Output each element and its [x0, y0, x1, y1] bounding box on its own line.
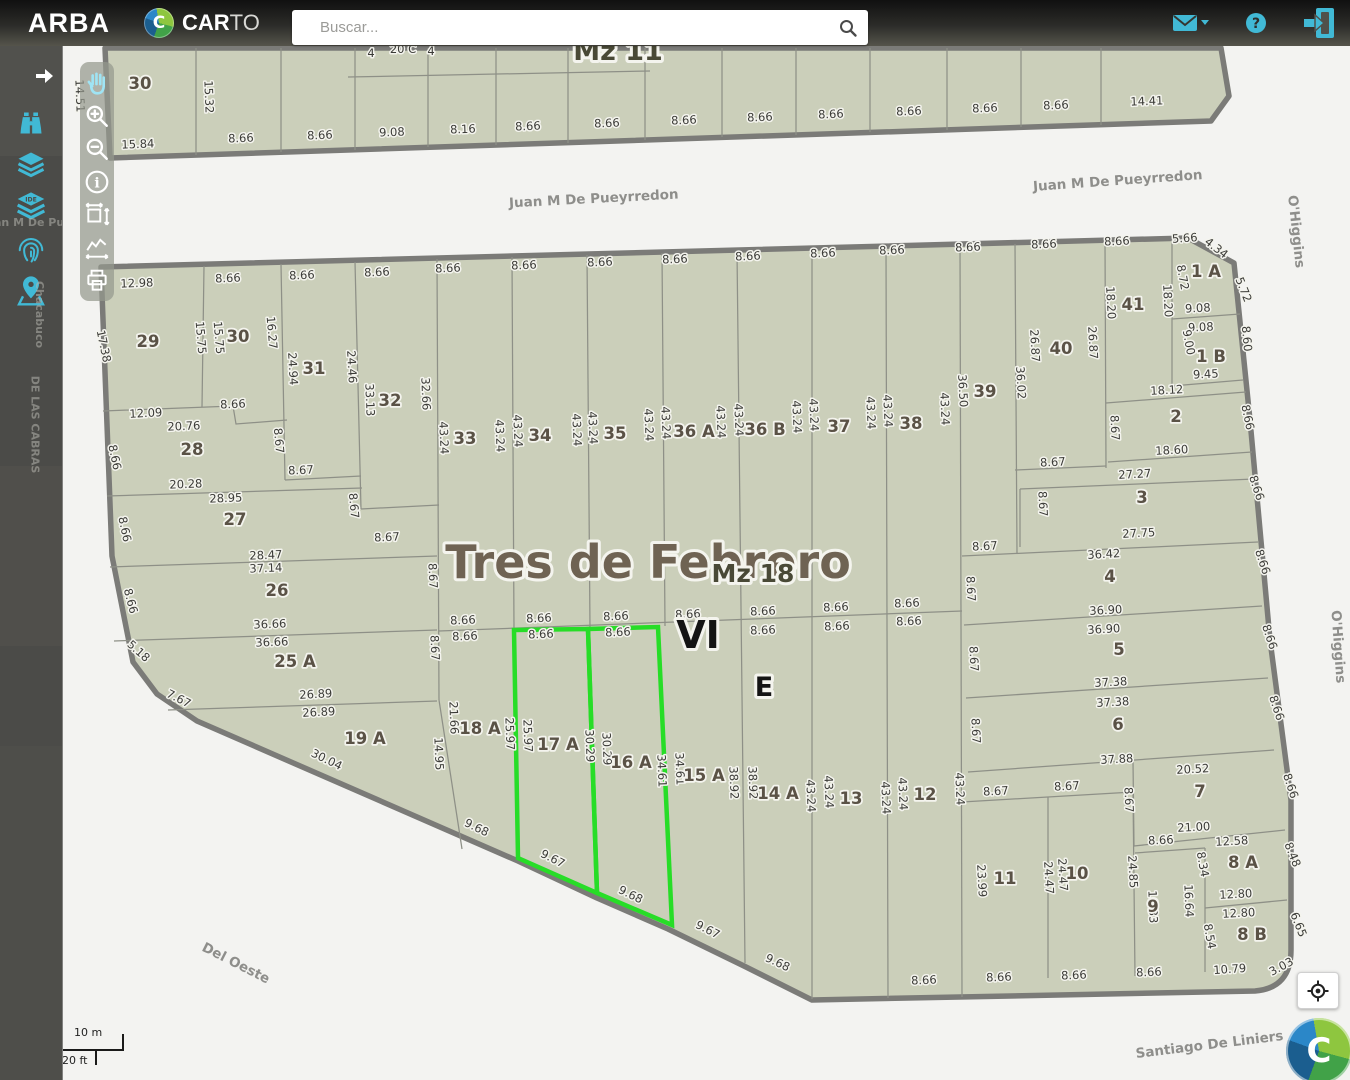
- dimension-label: 43.24: [789, 400, 804, 433]
- dimension-label: 8.66: [435, 261, 461, 276]
- parcel-number-label: 5: [1113, 640, 1124, 659]
- scale-metric-label: 10 m: [74, 1026, 102, 1039]
- dimension-label: 30.29: [582, 729, 597, 762]
- dimension-label: 37.14: [249, 560, 282, 575]
- dimension-label: 8.66: [215, 271, 241, 286]
- search-icon[interactable]: [828, 11, 868, 45]
- info-tool[interactable]: i: [82, 165, 112, 198]
- parcel-number-label: 8 B: [1237, 925, 1267, 944]
- dimension-label: 8.67: [288, 463, 314, 478]
- street-name-label: Santiago De Liniers: [1135, 1028, 1284, 1062]
- parcel-number-label: 35: [604, 424, 627, 443]
- dimension-label: 8.67: [983, 783, 1009, 798]
- parcel-number-label: 25 A: [274, 652, 316, 671]
- background-map-block: [0, 746, 62, 1080]
- dimension-label: 25.97: [502, 717, 517, 750]
- street-name-label: Juan M De Pueyrredon: [508, 187, 679, 212]
- dimension-label: 43.24: [878, 781, 893, 814]
- parcel-number-label: 12: [914, 785, 937, 804]
- dimension-label: 8.66: [896, 614, 922, 629]
- parcel-number-label: 30: [227, 327, 250, 346]
- print-tool[interactable]: [82, 264, 112, 297]
- dimension-label: 14.41: [1130, 93, 1163, 108]
- dimension-label: 8.66: [972, 101, 998, 116]
- dimension-label: 24.47: [1041, 861, 1057, 895]
- dimension-label: 8.66: [894, 596, 920, 611]
- dimension-label: 9.08: [1185, 300, 1211, 315]
- map-area: 15.848.668.669.088.168.668.668.668.668.6…: [0, 46, 1350, 1080]
- dimension-label: 25.97: [520, 719, 535, 752]
- arba-logo[interactable]: ARBA: [28, 8, 110, 39]
- svg-text:i: i: [94, 175, 99, 191]
- dimension-label: 8.16: [450, 122, 476, 137]
- dimension-label: 18.60: [1155, 442, 1189, 458]
- dimension-label: 8.67: [966, 646, 981, 672]
- dimension-label: 8.66: [896, 104, 922, 119]
- dimension-label: 43.24: [803, 779, 818, 812]
- expand-panel-arrow-icon[interactable]: [36, 68, 54, 89]
- dimension-label: 12.80: [1222, 905, 1256, 921]
- svg-text:IDE: IDE: [25, 197, 37, 204]
- parcel-number-label: 36 B: [744, 420, 785, 439]
- parcel-number-label: 39: [974, 382, 997, 401]
- dimension-label: 8.66: [1043, 98, 1069, 113]
- parcel-number-label: 1 B: [1196, 347, 1226, 366]
- dimension-label: 8.67: [1107, 415, 1122, 441]
- dimension-label: 8.67: [1054, 778, 1080, 793]
- dimension-label: 26.87: [1085, 326, 1101, 360]
- dimension-label: 4: [427, 46, 434, 58]
- dimension-label: 8.67: [972, 538, 998, 553]
- parcel-number-label: 7: [1194, 782, 1205, 801]
- dimension-label: 8.66: [452, 629, 478, 644]
- street-name-label: O'Higgins: [1327, 610, 1348, 684]
- dimension-label: 18.12: [1150, 382, 1184, 398]
- background-map-label: Chacabuco: [33, 281, 46, 348]
- dimension-label: 36.50: [955, 374, 971, 408]
- dimension-label: 8.60: [1239, 325, 1255, 352]
- dimension-label: 8.67: [374, 530, 400, 545]
- dimension-label: 8.66: [1104, 234, 1130, 249]
- parcel-number-label: 29: [137, 332, 160, 351]
- parcel-number-label: 17 A: [537, 735, 579, 754]
- dimension-label: 33.13: [362, 383, 377, 416]
- dimension-label: 8.67: [1121, 787, 1136, 813]
- dimension-label: 43.24: [952, 772, 967, 805]
- parcel-number-label: 6: [1112, 715, 1123, 734]
- dimension-label: 8.66: [528, 627, 554, 642]
- dimension-label: 8.66: [587, 255, 613, 270]
- logout-icon[interactable]: [1302, 7, 1338, 39]
- dimension-label: 43.24: [821, 775, 836, 808]
- dimension-label: 14.95: [431, 737, 446, 770]
- parcel-number-label: 19 A: [344, 729, 386, 748]
- dimension-label: 8.66: [735, 249, 761, 264]
- dimension-label: 32.66: [418, 377, 433, 410]
- dimension-label: 8.66: [747, 110, 773, 125]
- dimension-label: 5.66: [1171, 230, 1198, 246]
- parcel-number-label: 32: [379, 391, 402, 410]
- street-name-label: Juan M De Pueyrredon: [1032, 167, 1203, 195]
- dimension-label: 8.66: [228, 131, 254, 146]
- background-map-label: an M De Pueyrredon: [0, 216, 63, 229]
- dimension-label: 43.24: [569, 413, 584, 446]
- dimension-label: 28.95: [209, 490, 242, 505]
- parcel-number-label: 26: [266, 581, 289, 600]
- dimension-label: 24.85: [1125, 855, 1141, 889]
- parcel-number-label: 27: [224, 510, 247, 529]
- dimension-label: 8.66: [603, 609, 629, 624]
- parcel-number-label: 16 A: [610, 753, 652, 772]
- dimension-label: 37.88: [1100, 751, 1134, 767]
- dimension-label: 8.66: [818, 107, 844, 122]
- map-canvas[interactable]: 15.848.668.669.088.168.668.668.668.668.6…: [0, 46, 1350, 1080]
- dimension-label: 15.84: [121, 136, 154, 151]
- dimension-label: 16.64: [1181, 884, 1196, 917]
- dimension-label: 43.24: [585, 411, 600, 444]
- dimension-label: 8.66: [823, 600, 849, 615]
- measure-area-tool[interactable]: [82, 198, 112, 231]
- dimension-label: 8.66: [879, 243, 905, 258]
- geolocate-button[interactable]: [1297, 972, 1339, 1009]
- dimension-label: 8.67: [963, 576, 978, 602]
- zone-label: E: [755, 672, 773, 703]
- dimension-label: 36.02: [1013, 366, 1029, 400]
- search-box: [292, 10, 868, 45]
- street-name-label: Del Oeste: [199, 940, 272, 988]
- dimension-label: 10.79: [1213, 961, 1247, 977]
- dimension-label: 8.66: [750, 623, 776, 638]
- dimension-label: 8.66: [450, 613, 476, 628]
- zoom-in-tool[interactable]: [82, 99, 112, 132]
- dimension-label: 23.99: [974, 864, 990, 898]
- dimension-label: 36.66: [253, 616, 286, 631]
- dimension-label: 4: [367, 46, 374, 60]
- dimension-label: 8.67: [968, 718, 983, 744]
- dimension-label: 9.08: [379, 125, 405, 140]
- dimension-label: 8.66: [220, 397, 246, 412]
- dimension-label: 8.67: [271, 427, 287, 454]
- search-input[interactable]: [292, 19, 828, 36]
- dimension-label: 18.20: [1160, 284, 1176, 318]
- dimension-label: 8.66: [1136, 965, 1162, 980]
- dimension-label: 43.24: [492, 419, 507, 452]
- parcel-number-label: 4: [1104, 567, 1115, 586]
- dimension-label: 24.94: [285, 352, 301, 386]
- dimension-label: 43.24: [658, 406, 673, 439]
- layers-icon[interactable]: [12, 148, 50, 182]
- dimension-label: 43.24: [510, 414, 525, 447]
- dimension-label: 15.75: [193, 321, 210, 355]
- dimension-label: 43.24: [880, 394, 895, 427]
- dimension-label: 43.24: [937, 392, 952, 425]
- parcel-number-label: 2: [1170, 407, 1181, 426]
- dimension-label: 26.89: [299, 686, 333, 702]
- dimension-label: 18.20: [1103, 286, 1119, 320]
- carto-wordmark: CARTO: [182, 10, 260, 36]
- fingerprint-icon[interactable]: [12, 232, 50, 266]
- parcel-number-label: 36 A: [673, 422, 715, 441]
- dimension-label: 8.66: [605, 625, 631, 640]
- scale-imperial-label: 20 ft: [62, 1054, 88, 1067]
- parcel-number-label: 31: [303, 359, 326, 378]
- dimension-label: 8.66: [750, 604, 776, 619]
- dimension-label: 8.66: [1061, 968, 1087, 983]
- dimension-label: 8.66: [1148, 832, 1174, 847]
- help-icon[interactable]: ?: [1244, 11, 1268, 35]
- map-toolbar: i: [80, 62, 114, 301]
- left-panel-icons: IDE: [0, 106, 62, 308]
- dimension-label: 8.66: [662, 252, 688, 267]
- dimension-label: 8.66: [671, 113, 697, 128]
- svg-text:?: ?: [1252, 16, 1260, 32]
- dimension-label: 43.24: [806, 398, 821, 431]
- dimension-label: 12.09: [129, 405, 163, 421]
- zone-label: VI: [676, 613, 720, 657]
- dimension-label: 27.27: [1118, 466, 1152, 482]
- dimension-label: 8.66: [986, 970, 1012, 985]
- dimension-label: 36.42: [1087, 546, 1121, 562]
- dimension-label: 15.75: [211, 321, 228, 355]
- dimension-label: 12.58: [1215, 833, 1249, 849]
- dimension-label: 38.92: [726, 766, 741, 799]
- parcel-number-label: 34: [529, 426, 552, 445]
- dimension-label: 8.66: [810, 246, 836, 261]
- carto-globe-icon: C: [144, 8, 174, 38]
- parcel-number-label: 30: [129, 74, 152, 93]
- pan-hand-tool[interactable]: [82, 66, 112, 99]
- mail-icon[interactable]: [1172, 12, 1210, 34]
- app: ARBA C CARTO ? 15.848.668.669.088.168.66…: [0, 0, 1350, 1080]
- dimension-label: 24.46: [344, 350, 360, 384]
- street-name-label: O'Higgins: [1284, 194, 1308, 268]
- dimension-label: 8.66: [364, 265, 390, 280]
- parcel-number-label: 37: [828, 417, 851, 436]
- dimension-label: 12.80: [1219, 886, 1253, 902]
- dimension-label: 27.75: [1122, 525, 1156, 541]
- dimension-label: 8.66: [1031, 237, 1057, 252]
- parcel-number-label: 18 A: [459, 719, 501, 738]
- dimension-label: 8.67: [1040, 454, 1066, 469]
- parcel-number-label: 10: [1066, 864, 1089, 883]
- background-map-label: DE LAS CABRAS: [28, 376, 41, 474]
- parcel-number-label: 33: [454, 429, 477, 448]
- dimension-label: 8.67: [425, 563, 440, 589]
- dimension-label: 36.90: [1089, 602, 1123, 618]
- parcel-number-label: 15 A: [683, 766, 725, 785]
- dimension-label: 16.27: [264, 316, 281, 350]
- dimension-label: 43.24: [863, 396, 878, 429]
- dimension-label: 20.76: [167, 418, 200, 433]
- parcel-number-label: 11: [994, 869, 1017, 888]
- dimension-label: 8.66: [911, 973, 937, 988]
- dimension-label: 26.87: [1027, 329, 1043, 363]
- parcel-number-label: 1 A: [1191, 262, 1221, 281]
- parcel-number-label: 28: [181, 440, 204, 459]
- zoom-out-tool[interactable]: [82, 132, 112, 165]
- dimension-label: 21.00: [1177, 819, 1211, 835]
- parcel-number-label: 9: [1147, 897, 1158, 916]
- dimension-label: 8.66: [289, 268, 315, 283]
- topbar: ARBA C CARTO ?: [0, 0, 1350, 46]
- left-panel: IDE an M De PueyrredonChacabucoDE LAS CA…: [0, 46, 63, 1080]
- dimension-label: 26.89: [302, 704, 336, 720]
- parcel-number-label: 3: [1136, 488, 1147, 507]
- dimension-label: 37.38: [1094, 674, 1128, 690]
- background-map-block: [0, 466, 62, 646]
- carto-logo: C CARTO: [144, 8, 260, 38]
- dimension-label: 8.66: [515, 119, 541, 134]
- dimension-label: 34.61: [654, 754, 669, 787]
- dimension-label: 12.98: [120, 275, 153, 290]
- measure-path-tool[interactable]: [82, 231, 112, 264]
- dimension-label: 43.24: [641, 408, 656, 441]
- carto-logo-watermark: C: [1286, 1018, 1350, 1080]
- parcel-number-label: 41: [1122, 295, 1145, 314]
- parcel-number-label: 14 A: [757, 784, 799, 803]
- topbar-right-icons: ?: [1172, 0, 1338, 46]
- dimension-label: 37.38: [1096, 694, 1130, 710]
- dimension-label: 36.90: [1087, 621, 1121, 637]
- dimension-label: 43.24: [713, 405, 728, 438]
- zone-label: Mz 18: [712, 559, 795, 588]
- dimension-label: 20 C: [390, 46, 416, 56]
- dimension-label: 8.66: [307, 128, 333, 143]
- dimension-label: 36.66: [255, 634, 288, 649]
- dimension-label: 20.52: [1176, 761, 1210, 777]
- dimension-label: 8.66: [824, 619, 850, 634]
- parcel-number-label: 40: [1050, 339, 1073, 358]
- dimension-label: 43.24: [895, 777, 910, 810]
- dimension-label: 9.45: [1193, 366, 1219, 381]
- dimension-label: 8.66: [594, 116, 620, 131]
- zone-label: Mz 11: [573, 46, 663, 67]
- dimension-label: 43.24: [436, 421, 451, 454]
- dimension-label: 8.66: [526, 611, 552, 626]
- parcel-number-label: 38: [900, 414, 923, 433]
- dimension-label: 8.66: [955, 240, 981, 255]
- dimension-label: 8.67: [346, 492, 362, 519]
- dimension-label: 8.67: [427, 635, 442, 661]
- dimension-label: 20.28: [169, 476, 202, 491]
- dimension-label: 15.32: [201, 80, 216, 113]
- parcel-number-label: 8 A: [1228, 853, 1258, 872]
- parcel-number-label: 13: [840, 789, 863, 808]
- binoculars-icon[interactable]: [12, 106, 50, 140]
- dimension-label: 8.66: [511, 258, 537, 273]
- dimension-label: 8.67: [1035, 491, 1050, 517]
